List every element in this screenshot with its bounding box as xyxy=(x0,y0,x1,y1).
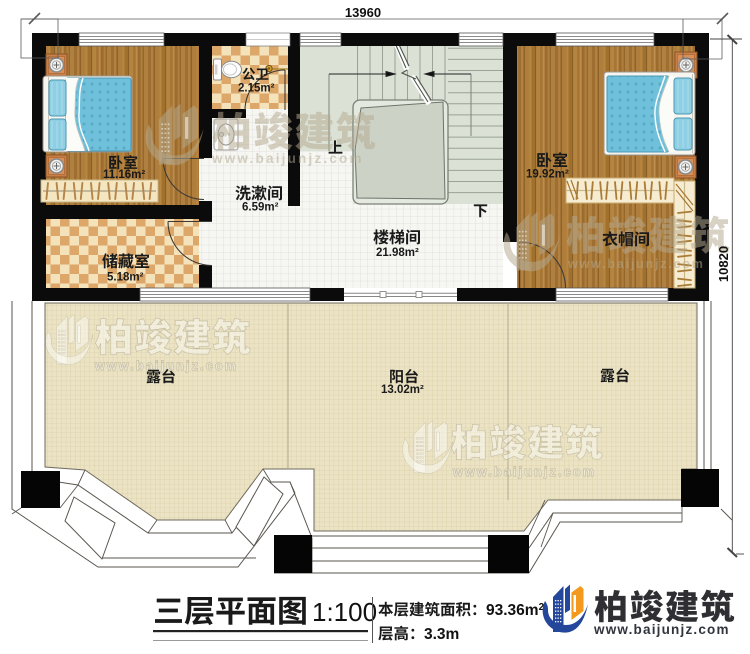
svg-text:3.3m: 3.3m xyxy=(424,626,459,643)
svg-text:10820: 10820 xyxy=(716,246,731,282)
svg-text:www.baijunjz.com: www.baijunjz.com xyxy=(452,465,596,479)
svg-text:21.98m²: 21.98m² xyxy=(376,247,419,259)
svg-text:13.02m²: 13.02m² xyxy=(381,384,424,396)
svg-text:www.baijunjz.com: www.baijunjz.com xyxy=(567,257,705,271)
svg-text:2.15m²: 2.15m² xyxy=(238,83,275,95)
svg-text:11.16m²: 11.16m² xyxy=(103,169,145,181)
svg-text:93.36m2: 93.36m2 xyxy=(486,602,545,619)
svg-text:6.59m²: 6.59m² xyxy=(242,202,279,214)
svg-text:19.92m²: 19.92m² xyxy=(526,169,569,181)
svg-text:www.baijunjz.com: www.baijunjz.com xyxy=(593,622,730,637)
svg-text:5.18m²: 5.18m² xyxy=(107,272,144,284)
svg-text:13960: 13960 xyxy=(345,5,381,20)
svg-text:1:100: 1:100 xyxy=(312,597,377,627)
